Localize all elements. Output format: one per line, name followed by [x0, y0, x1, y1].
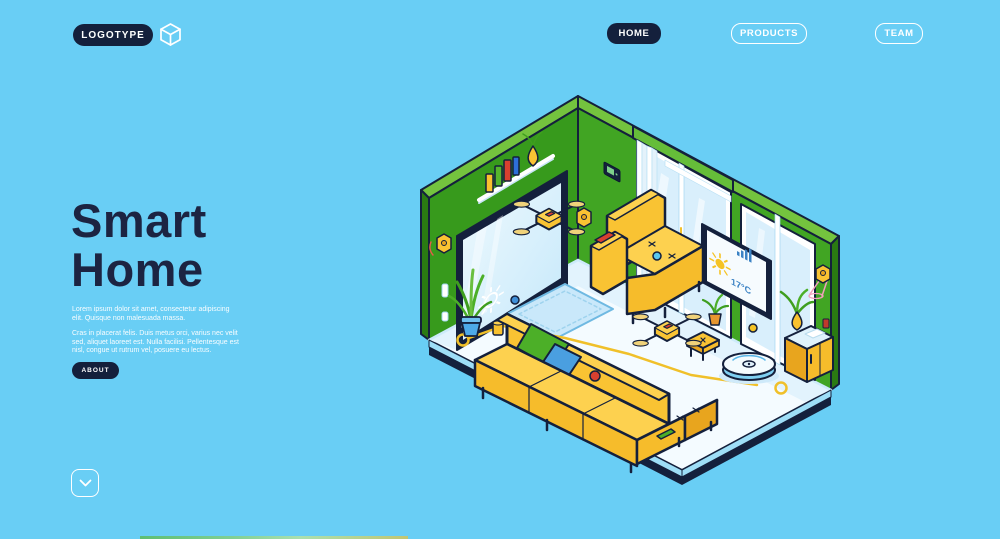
intro-paragraph-1: Lorem ipsum dolor sit amet, consectetur …	[72, 306, 240, 323]
nav-team-button[interactable]: TEAM	[875, 23, 923, 44]
logo-button[interactable]: LOGOTYPE	[73, 24, 153, 46]
nav-products-button[interactable]: PRODUCTS	[731, 23, 807, 44]
robot-vacuum	[719, 353, 779, 384]
smart-home-landing-page: LOGOTYPE HOME PRODUCTS TEAM Smart Home L…	[0, 0, 1000, 539]
yellow-ball	[749, 324, 757, 332]
nav-home-button[interactable]: HOME	[607, 23, 661, 44]
cube-logo-icon	[157, 21, 184, 48]
blue-ball	[511, 296, 519, 304]
title-line-1: Smart	[71, 194, 207, 247]
title-line-2: Home	[71, 243, 204, 296]
page-title: Smart Home	[71, 196, 207, 294]
red-ball	[590, 371, 600, 381]
scroll-down-button[interactable]	[71, 469, 99, 497]
chevron-down-icon	[79, 476, 92, 491]
about-button[interactable]: ABOUT	[72, 362, 119, 379]
wall-speaker-corner	[577, 208, 591, 227]
wall-socket	[442, 312, 448, 321]
smart-home-illustration: 17°C	[415, 88, 895, 518]
intro-paragraph-2: Cras in placerat felis. Duis metus orci,…	[72, 330, 240, 356]
tin	[823, 319, 829, 328]
light-switch	[442, 284, 448, 297]
